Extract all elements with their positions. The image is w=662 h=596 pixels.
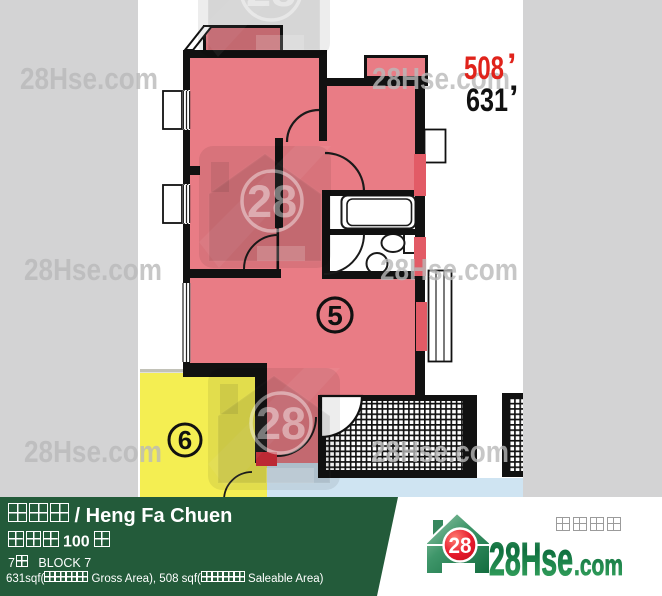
svg-text:28: 28 (449, 533, 472, 558)
svg-text:6: 6 (178, 425, 192, 455)
svg-text:28Hse.com: 28Hse.com (20, 61, 158, 96)
svg-text:5: 5 (327, 300, 343, 331)
svg-text:28Hse.com: 28Hse.com (24, 434, 162, 469)
svg-text:28Hse.com: 28Hse.com (371, 434, 509, 469)
svg-text:.com: .com (574, 549, 623, 582)
svg-text:28Hse: 28Hse (489, 533, 573, 585)
svg-text:’: ’ (509, 79, 518, 117)
svg-text:631: 631 (466, 82, 508, 118)
svg-text:508: 508 (464, 50, 504, 86)
svg-text:28Hse.com: 28Hse.com (380, 252, 518, 287)
svg-text:28Hse.com: 28Hse.com (24, 252, 162, 287)
